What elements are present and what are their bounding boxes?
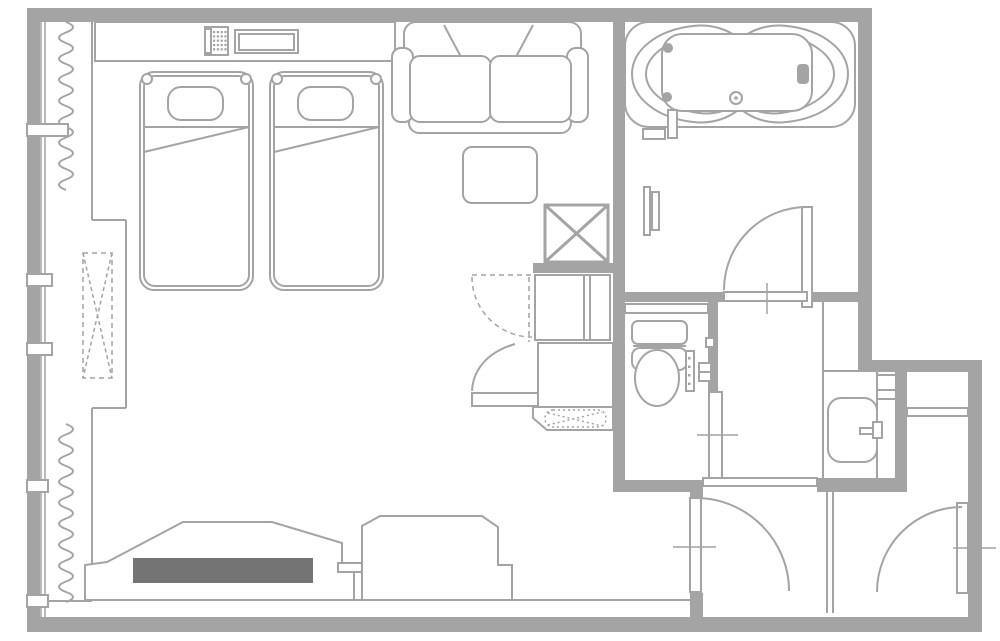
vanity-shelf-upper xyxy=(877,375,896,390)
hall-door-arc xyxy=(696,498,789,591)
luggage-bench-foot xyxy=(338,563,362,572)
closet-upper-cabinet xyxy=(535,275,610,340)
closet-door-dashed-arc xyxy=(472,277,532,337)
outer-wall-right-upper xyxy=(858,8,872,368)
outer-wall-right-lower xyxy=(968,360,982,632)
closet-lower-cabinet xyxy=(538,343,613,407)
window-mullion-cap-4 xyxy=(27,480,48,492)
outer-wall-bottom xyxy=(27,617,982,632)
floor-plan-svg xyxy=(0,0,1000,641)
bed-2-caster-right xyxy=(371,74,381,84)
curtain-top xyxy=(59,22,73,190)
closet-stub-wall xyxy=(533,263,613,273)
bathtub-drain-dot xyxy=(734,96,738,100)
partition-wall-main xyxy=(613,22,625,488)
toilet-tank xyxy=(632,321,687,344)
bathroom-wall-left-seg xyxy=(613,292,727,302)
vanity-shelf-lower xyxy=(877,390,896,399)
bed-1-caster-right xyxy=(241,74,251,84)
window-mullion-cap-2 xyxy=(27,274,52,286)
basin-faucet-stem xyxy=(860,428,873,434)
reserved-item-diagonal-2 xyxy=(83,253,112,378)
window-mullion-cap-3 xyxy=(27,343,52,355)
shower-control-bar-1 xyxy=(644,187,650,235)
console-tray-inner xyxy=(239,34,294,50)
bathtub-step xyxy=(643,129,665,139)
vanity-bottom-wall xyxy=(817,478,907,492)
television xyxy=(133,558,313,583)
outer-wall-top xyxy=(27,8,872,22)
curtain-bottom xyxy=(59,424,73,602)
outer-wall-left xyxy=(27,8,40,632)
toilet-door-leaf xyxy=(709,392,722,485)
toilet-room-shelf xyxy=(625,304,708,313)
vanity-entry-threshold xyxy=(703,478,817,486)
telephone-handset xyxy=(205,29,211,53)
luggage-bench xyxy=(362,516,512,600)
entry-door-pier-top xyxy=(690,480,703,498)
bathtub-overflow xyxy=(797,64,809,84)
hallway-door-leaf xyxy=(472,393,538,406)
bed-1-caster-left xyxy=(142,74,152,84)
bed-2-caster-left xyxy=(272,74,282,84)
floor-plan-page xyxy=(0,0,1000,641)
bed-1-pillow xyxy=(168,87,223,120)
window-mullion-cap-1 xyxy=(27,124,68,136)
basin-faucet-head xyxy=(873,422,882,438)
toilet-bottom-wall xyxy=(613,480,690,492)
bathtub-jet-upper xyxy=(663,43,673,53)
bathroom-door-arc xyxy=(724,207,807,290)
toilet-wall-hook xyxy=(706,338,714,347)
coffee-table xyxy=(463,147,537,203)
bathtub-jet-lower xyxy=(662,92,672,102)
bathroom-door-threshold xyxy=(724,292,807,301)
entry-closet-shelf xyxy=(907,408,968,416)
sofa-seat-cushion-left xyxy=(410,56,491,122)
hall-door-leaf xyxy=(690,498,701,592)
window-mullion-cap-5 xyxy=(27,595,48,607)
bathroom-wall-right-seg xyxy=(807,292,858,302)
sofa-seat-cushion-right xyxy=(490,56,571,122)
toilet-bowl xyxy=(635,350,679,406)
hallway-door-arc xyxy=(472,344,515,391)
bed-2-pillow xyxy=(298,87,353,120)
entrance-door-arc xyxy=(877,507,962,592)
shower-control-bar-2 xyxy=(652,192,659,230)
bathtub-apron-post xyxy=(668,110,677,138)
toilet-paper-holder-upper xyxy=(699,363,711,372)
entry-door-pier-bottom xyxy=(690,593,703,617)
toilet-paper-holder-lower xyxy=(699,372,711,381)
